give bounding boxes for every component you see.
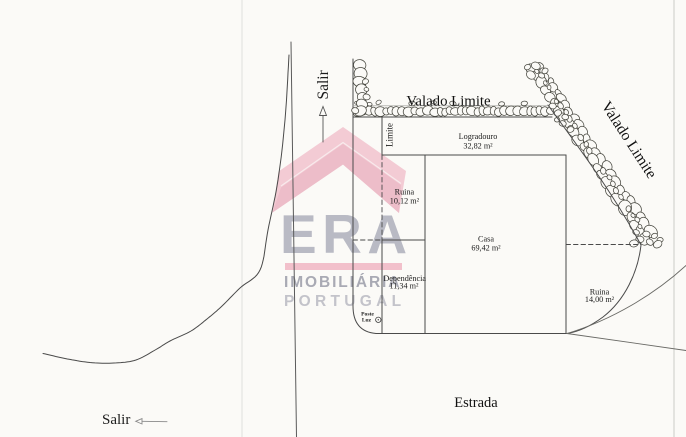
svg-text:Salir: Salir: [315, 69, 332, 99]
svg-text:Logradouro: Logradouro: [459, 132, 498, 141]
svg-text:32,82 m²: 32,82 m²: [463, 141, 493, 150]
svg-text:11,34 m²: 11,34 m²: [390, 282, 420, 291]
svg-text:Salir: Salir: [102, 412, 130, 428]
svg-text:Ruina: Ruina: [395, 188, 415, 197]
svg-text:14,00 m²: 14,00 m²: [585, 295, 615, 304]
svg-text:Luz: Luz: [362, 317, 372, 323]
svg-text:10,12 m²: 10,12 m²: [390, 196, 420, 205]
svg-text:Limite: Limite: [385, 123, 395, 147]
svg-text:Valado Limite: Valado Limite: [406, 94, 491, 110]
svg-text:Casa: Casa: [478, 235, 494, 244]
svg-text:Estrada: Estrada: [454, 395, 498, 411]
svg-text:69,42 m²: 69,42 m²: [471, 244, 501, 253]
